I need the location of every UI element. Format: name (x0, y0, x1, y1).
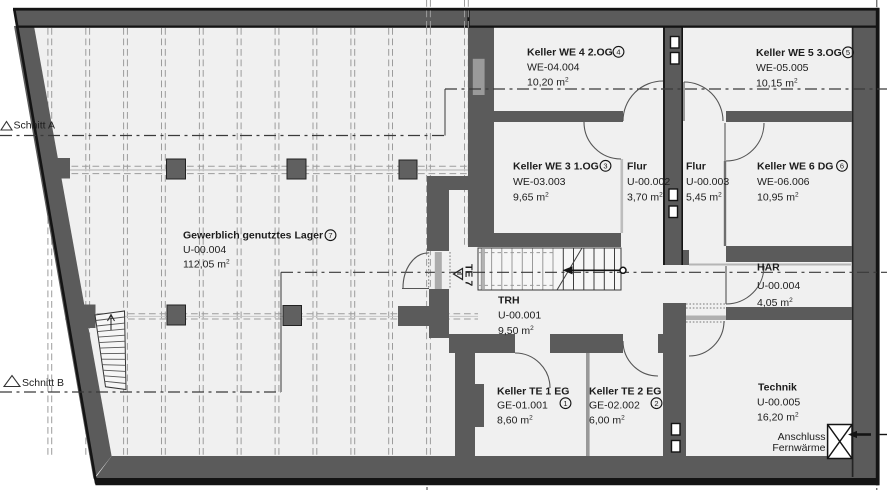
svg-text:HAR: HAR (757, 262, 780, 274)
svg-text:10,20 m2: 10,20 m2 (527, 77, 569, 89)
svg-text:6,00 m2: 6,00 m2 (589, 415, 625, 427)
svg-text:4: 4 (616, 48, 620, 57)
svg-text:5,45 m2: 5,45 m2 (686, 192, 722, 204)
svg-text:3: 3 (603, 162, 607, 171)
svg-text:U-00.004: U-00.004 (757, 280, 800, 292)
svg-text:8,60 m2: 8,60 m2 (497, 415, 533, 427)
svg-text:9,50 m2: 9,50 m2 (498, 325, 534, 337)
svg-text:TE 7: TE 7 (463, 264, 475, 286)
svg-text:Schnitt B: Schnitt B (22, 377, 64, 389)
svg-text:U-00.001: U-00.001 (498, 310, 541, 322)
svg-text:6: 6 (840, 162, 844, 171)
svg-text:U-00.003: U-00.003 (686, 176, 729, 188)
svg-text:Schnitt A: Schnitt A (14, 120, 55, 132)
svg-text:Keller WE 4 2.OG: Keller WE 4 2.OG (527, 47, 613, 59)
svg-text:TRH: TRH (498, 295, 520, 307)
svg-text:1: 1 (563, 399, 567, 408)
svg-text:10,15 m2: 10,15 m2 (756, 78, 798, 90)
svg-text:Keller TE 1 EG: Keller TE 1 EG (497, 386, 569, 398)
svg-text:WE-03.003: WE-03.003 (513, 176, 566, 188)
svg-text:WE-06.006: WE-06.006 (757, 176, 810, 188)
svg-text:U-00.004: U-00.004 (183, 244, 226, 256)
svg-text:5: 5 (846, 48, 850, 57)
svg-text:16,20 m2: 16,20 m2 (757, 412, 799, 424)
svg-text:U-00.005: U-00.005 (757, 397, 800, 409)
svg-text:7: 7 (328, 231, 332, 240)
svg-text:Keller WE 5 3.OG: Keller WE 5 3.OG (756, 47, 842, 59)
svg-text:WE-04.004: WE-04.004 (527, 62, 580, 74)
svg-text:Flur: Flur (627, 161, 647, 173)
svg-text:4,05 m2: 4,05 m2 (757, 297, 793, 309)
svg-text:Flur: Flur (686, 161, 706, 173)
svg-text:Keller WE 3 1.OG: Keller WE 3 1.OG (513, 161, 599, 173)
svg-text:3,70 m2: 3,70 m2 (627, 192, 663, 204)
svg-text:Technik: Technik (758, 382, 797, 394)
svg-text:GE-01.001: GE-01.001 (497, 400, 548, 412)
svg-text:2: 2 (654, 399, 658, 408)
svg-text:9,65 m2: 9,65 m2 (513, 192, 549, 204)
svg-text:Keller WE 6 DG: Keller WE 6 DG (757, 161, 833, 173)
svg-text:Fernwärme: Fernwärme (772, 442, 825, 454)
svg-text:GE-02.002: GE-02.002 (589, 400, 640, 412)
svg-text:112,05 m2: 112,05 m2 (183, 259, 230, 271)
svg-text:Gewerblich genutztes Lager: Gewerblich genutztes Lager (183, 230, 323, 242)
svg-text:U-00.002: U-00.002 (627, 176, 670, 188)
svg-text:WE-05.005: WE-05.005 (756, 62, 809, 74)
svg-text:Keller TE 2 EG: Keller TE 2 EG (589, 386, 661, 398)
svg-text:10,95 m2: 10,95 m2 (757, 192, 799, 204)
